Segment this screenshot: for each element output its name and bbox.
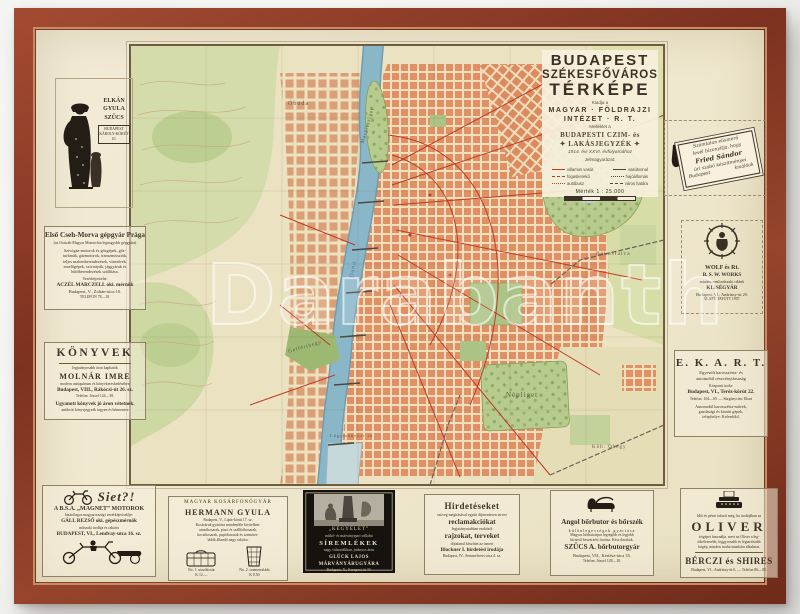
map-title-block: BUDAPEST SZÉKESFŐVÁROS TÉRKÉPE Kiadja a … xyxy=(542,50,658,197)
card-script-line: kiválóak xyxy=(734,163,754,173)
map-directory-line2: ✦ LAKÁSJEGYZÉK ✦ xyxy=(542,140,658,149)
ad-gravestone-company: „KEGYELET” műkő- és márványipari vállala… xyxy=(303,490,395,573)
ad-line: ELKÁN xyxy=(98,97,130,105)
ad-wolf-works: WOLF és Rt. B. S. W. WORKS mindennemű mű… xyxy=(681,220,763,314)
ad-line: telephelye: Kelenföld. xyxy=(675,414,767,419)
ad-address: Budapest, VI., Teréz-körút 22. xyxy=(675,389,767,396)
ad-address: Budapest, IV., Semmelweis-utca 4. sz. xyxy=(425,554,519,559)
ad-line: írógép, minden irodai munkára alkalmas. xyxy=(681,545,777,550)
map-label-lagymanyos: Lágymányosi tó xyxy=(330,433,373,438)
ad-siet-header: Siet?! xyxy=(43,488,155,505)
ad-title: Siet?! xyxy=(98,489,136,505)
ad-name: HERMANN GYULA xyxy=(169,507,287,518)
ad-note: Ugyanott könyvek jó áron vétetnek. xyxy=(45,401,145,408)
legend-mark-dashed-dark xyxy=(610,183,623,184)
art-nouveau-lady-illustration xyxy=(59,99,103,199)
basket-price: K 12.— xyxy=(186,573,216,578)
ad-line1: A B.S.A. „MAGNET” MOTOROK xyxy=(43,505,155,513)
ad-line-big: rajzokat, terveket xyxy=(425,532,519,542)
ad-title: Angol bőrbutor és bőrszék xyxy=(551,518,653,528)
legend-label: város határa xyxy=(625,180,648,187)
ad-line: KÁROLY-KÖRÚT 10. xyxy=(99,132,129,142)
ad-keyword: SÍREMLÉKEK xyxy=(304,539,394,549)
basket-product-1: No. 1. utazókosár K 12.— xyxy=(186,549,216,579)
map-scale-bar xyxy=(564,196,636,201)
ad-name: Blockner I. hirdetési irodája xyxy=(425,547,519,554)
map-edition: 1914. évi XXVI. évfolyamához xyxy=(542,149,658,157)
legend-label: hajóállomás xyxy=(626,173,648,180)
ad-name: SZŰCS A. bőrbutorgyár xyxy=(551,543,653,553)
map-label-nepliget: Népliget xyxy=(506,391,538,399)
divider xyxy=(59,363,131,364)
travel-basket-icon xyxy=(186,549,216,567)
map-directory-line1: BUDAPESTI CZIM- és xyxy=(542,131,658,140)
map-publisher-line1: MAGYAR · FÖLDRAJZI xyxy=(542,107,658,116)
ad-elkan-address-box: BUDAPEST KÁROLY-KÖRÚT 10. xyxy=(98,125,130,144)
map-scale-text: Mérték 1 : 25.000 xyxy=(542,189,658,195)
ad-elkan-furrier: ELKÁN GYULA SZŰCS BUDAPEST KÁROLY-KÖRÚT … xyxy=(55,78,133,208)
basket-price: K 8.50 xyxy=(239,573,269,578)
ad-oliver-typewriters: Időt és pénzt takarít meg, ha irodájában… xyxy=(680,488,778,578)
divider xyxy=(695,552,763,553)
ad-name: MOLNÁR IMRE xyxy=(45,371,145,382)
ad-brand: OLIVER xyxy=(681,519,777,535)
typewriter-icon xyxy=(714,491,744,509)
legend-label: vasútvonal xyxy=(628,166,648,173)
ad-title: KÖNYVEK xyxy=(45,347,145,361)
ad-line: GYULA xyxy=(98,105,130,113)
ad-address: BUDAPEST, VI., Lendvay-utca 16. sz. xyxy=(43,531,155,538)
ad-address: Budapest, VIII., Rákóczi-út 26. sz. xyxy=(45,387,145,394)
ad-line-big: Hirdetéseket xyxy=(425,500,519,513)
monument-photo xyxy=(314,494,384,526)
ad-name: BÉRCZI és SHIRES xyxy=(681,555,777,568)
ad-phone: TELEFON 78—18. xyxy=(45,295,145,300)
waste-basket-icon xyxy=(244,545,264,567)
ad-cseh-morva-machine-works: Első Cseh-Morva gépgyár Prága (az Osztrá… xyxy=(44,226,146,310)
ad-blockner-advertising: Hirdetéseket szöveg megírásával együtt d… xyxy=(424,494,520,575)
map-title-line1: BUDAPEST xyxy=(542,53,658,69)
legend-mark-dotted-dark xyxy=(611,176,624,177)
ad-phone: Telefon: József 128—10. xyxy=(551,559,653,564)
motorcycle-sidecar-illustration xyxy=(53,539,145,565)
ad-molnar-imre-books: KÖNYVEK legjutányosabb áron kaphatók MOL… xyxy=(44,342,146,420)
ad-name: GLÜCK LAJOS MÁRVÁNYÁRUGYÁRA xyxy=(304,554,394,568)
legend-mark-dashed-red xyxy=(552,176,565,177)
ad-brand: „KEGYELET” xyxy=(304,526,394,534)
ad-subtitle: (az Osztrák-Magyar Monarchia legnagyobb … xyxy=(45,241,145,246)
ad-line-big: reclamakciókat xyxy=(425,518,519,528)
ad-magnet-motorcycles: Siet?! A B.S.A. „MAGNET” MOTOROK kizáról… xyxy=(42,485,156,577)
map-label-kobanya: Kőb. Óhegy xyxy=(592,445,626,450)
photo-of-framed-map: Óbuda Margitsziget Városliget Rákosfalva… xyxy=(0,0,800,614)
legend-label: villamos vasút xyxy=(567,166,593,173)
ad-name: E. K. A. R. T. xyxy=(675,356,767,370)
basket-products: No. 1. utazókosár K 12.— No. 2. szemet xyxy=(169,545,287,579)
legend-label: fogaskerekű xyxy=(567,173,590,180)
ad-line: SZŰCS xyxy=(98,114,130,122)
ad-founded: ALAPÍTTATOTT 1907. xyxy=(682,297,762,302)
map-title-line3: TÉRKÉPE xyxy=(542,81,658,100)
ad-line-tiny: szöveg megírásával együtt díjmentesen te… xyxy=(425,513,519,518)
wooden-frame: Óbuda Margitsziget Városliget Rákosfalva… xyxy=(14,8,786,604)
ad-name: WOLF és Rt. xyxy=(682,264,762,272)
map-title-kiadja: Kiadja a xyxy=(542,100,658,107)
motorcycle-icon xyxy=(63,488,93,505)
ad-line: B. S. W. WORKS xyxy=(682,272,762,279)
ad-note2: antikvár könyvjegyzék ingyen és bérmentv… xyxy=(45,408,145,413)
ad-top-line: MAGYAR KOSÁRFONÓGYÁR xyxy=(169,500,287,507)
legend-mark-dotted-red xyxy=(552,183,565,184)
ad-szucs-leather-furniture: Angol bőrbutor és bőrszék különlegessége… xyxy=(550,490,654,576)
wolf-emblem-medallion xyxy=(704,223,740,259)
map-publisher-line2: INTÉZET · R. T. xyxy=(542,116,658,125)
legend-mark-solid-dark xyxy=(613,169,626,170)
ad-body: ládák állandó nagy raktára. xyxy=(169,538,287,543)
ad-ekart-coachworks: E. K. A. R. T. Egyesült karosszéria- és … xyxy=(674,350,768,437)
ad-address: Budapest, X., Kerepesi-út 44. xyxy=(304,568,394,573)
ad-business-card: Számtalan elismerő levél bizonyítja, hog… xyxy=(664,120,766,196)
basket-product-2: No. 2. szemetesláda K 8.50 xyxy=(239,545,269,579)
map-paper: Óbuda Margitsziget Városliget Rákosfalva… xyxy=(36,30,764,582)
map-title-melleklet: Melléklet a xyxy=(542,124,658,131)
map-legend-title: Jelmagyarázat: xyxy=(542,157,658,164)
ad-elkan-text: ELKÁN GYULA SZŰCS BUDAPEST KÁROLY-KÖRÚT … xyxy=(98,97,130,144)
ad-address: Budapest, VI., Andrássy-út 6. — Telefon … xyxy=(681,568,777,573)
legend-mark-solid-red xyxy=(552,169,565,170)
leather-armchair-icon xyxy=(585,493,619,513)
map-label-obuda: Óbuda xyxy=(288,101,309,107)
ad-rep-name: ACZÉL MARCZELL oki. mérnök xyxy=(45,282,145,289)
ad-line: KLISÉGYÁR xyxy=(682,285,762,292)
map-label-rakosfalva: Rákosfalva xyxy=(596,251,631,257)
ad-name: GÁLL REZSŐ oki. gépészmérnök xyxy=(43,518,155,525)
map-legend: villamos vasút vasútvonal fogaskerekű ha… xyxy=(552,166,648,187)
legend-label: autóbusz xyxy=(567,180,584,187)
ad-hermann-basketworks: MAGYAR KOSÁRFONÓGYÁR HERMANN GYULA Budap… xyxy=(168,496,288,581)
ad-title: Első Cseh-Morva gépgyár Prága xyxy=(45,231,145,241)
map-plate: Óbuda Margitsziget Városliget Rákosfalva… xyxy=(129,44,665,486)
business-card-face: Számtalan elismerő levél bizonyítja, hog… xyxy=(678,130,761,188)
